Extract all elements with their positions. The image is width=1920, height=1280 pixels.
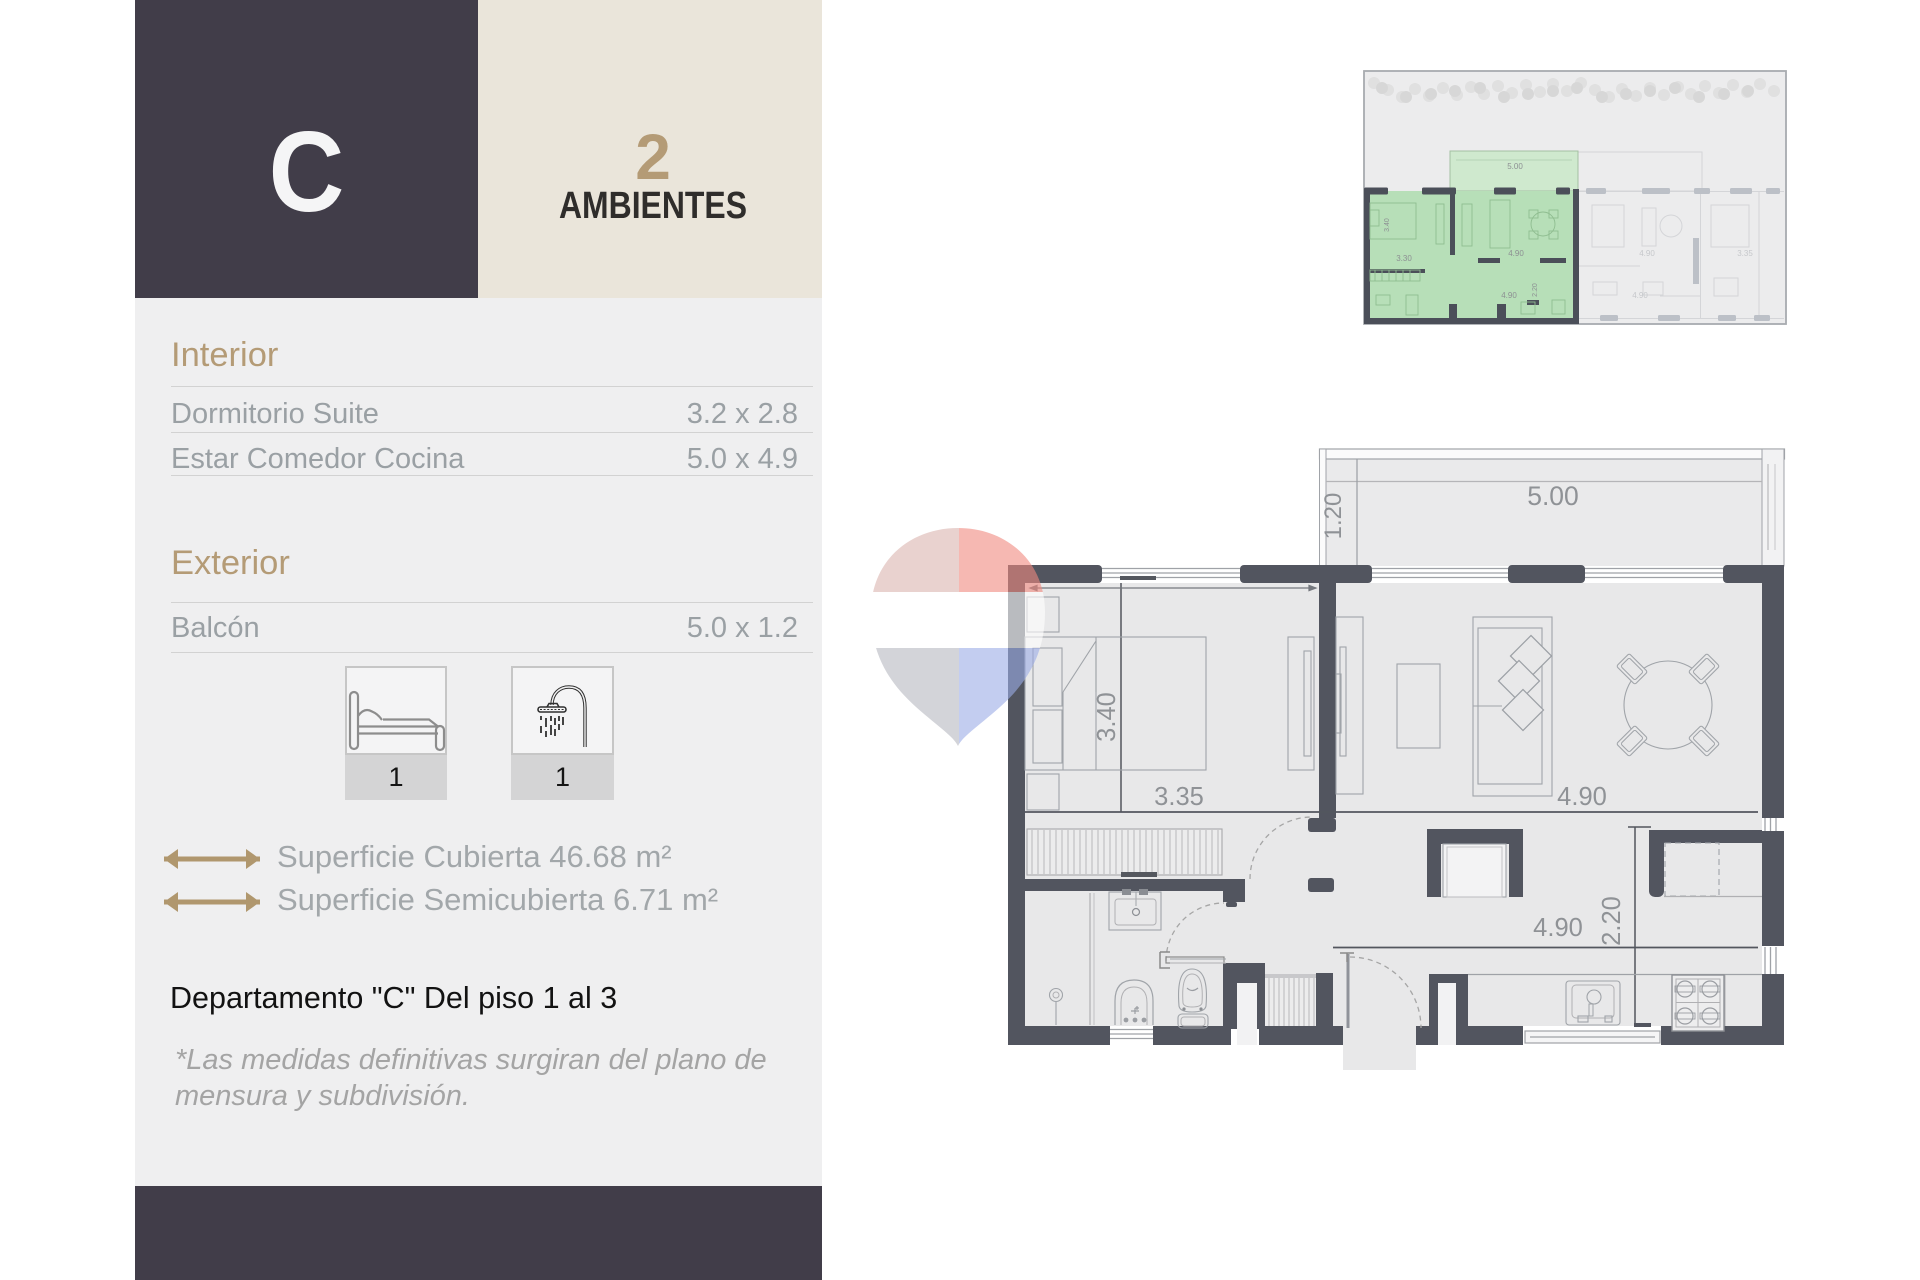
svg-text:2.20: 2.20: [1598, 896, 1626, 946]
svg-text:4.90: 4.90: [1533, 914, 1583, 942]
svg-text:4.90: 4.90: [1501, 291, 1517, 300]
svg-text:4.90: 4.90: [1639, 249, 1655, 258]
svg-text:4.90: 4.90: [1632, 291, 1648, 300]
svg-text:2.20: 2.20: [1532, 283, 1539, 297]
svg-text:5.00: 5.00: [1507, 162, 1523, 171]
svg-text:3.35: 3.35: [1737, 249, 1753, 258]
svg-text:3.40: 3.40: [1093, 692, 1121, 742]
svg-text:3.30: 3.30: [1396, 254, 1412, 263]
svg-text:5.00: 5.00: [1527, 481, 1579, 511]
svg-text:4.90: 4.90: [1508, 249, 1524, 258]
svg-text:4.90: 4.90: [1557, 783, 1607, 811]
svg-text:3.40: 3.40: [1384, 218, 1391, 232]
svg-text:1.20: 1.20: [1320, 493, 1347, 540]
svg-text:3.35: 3.35: [1154, 783, 1204, 811]
